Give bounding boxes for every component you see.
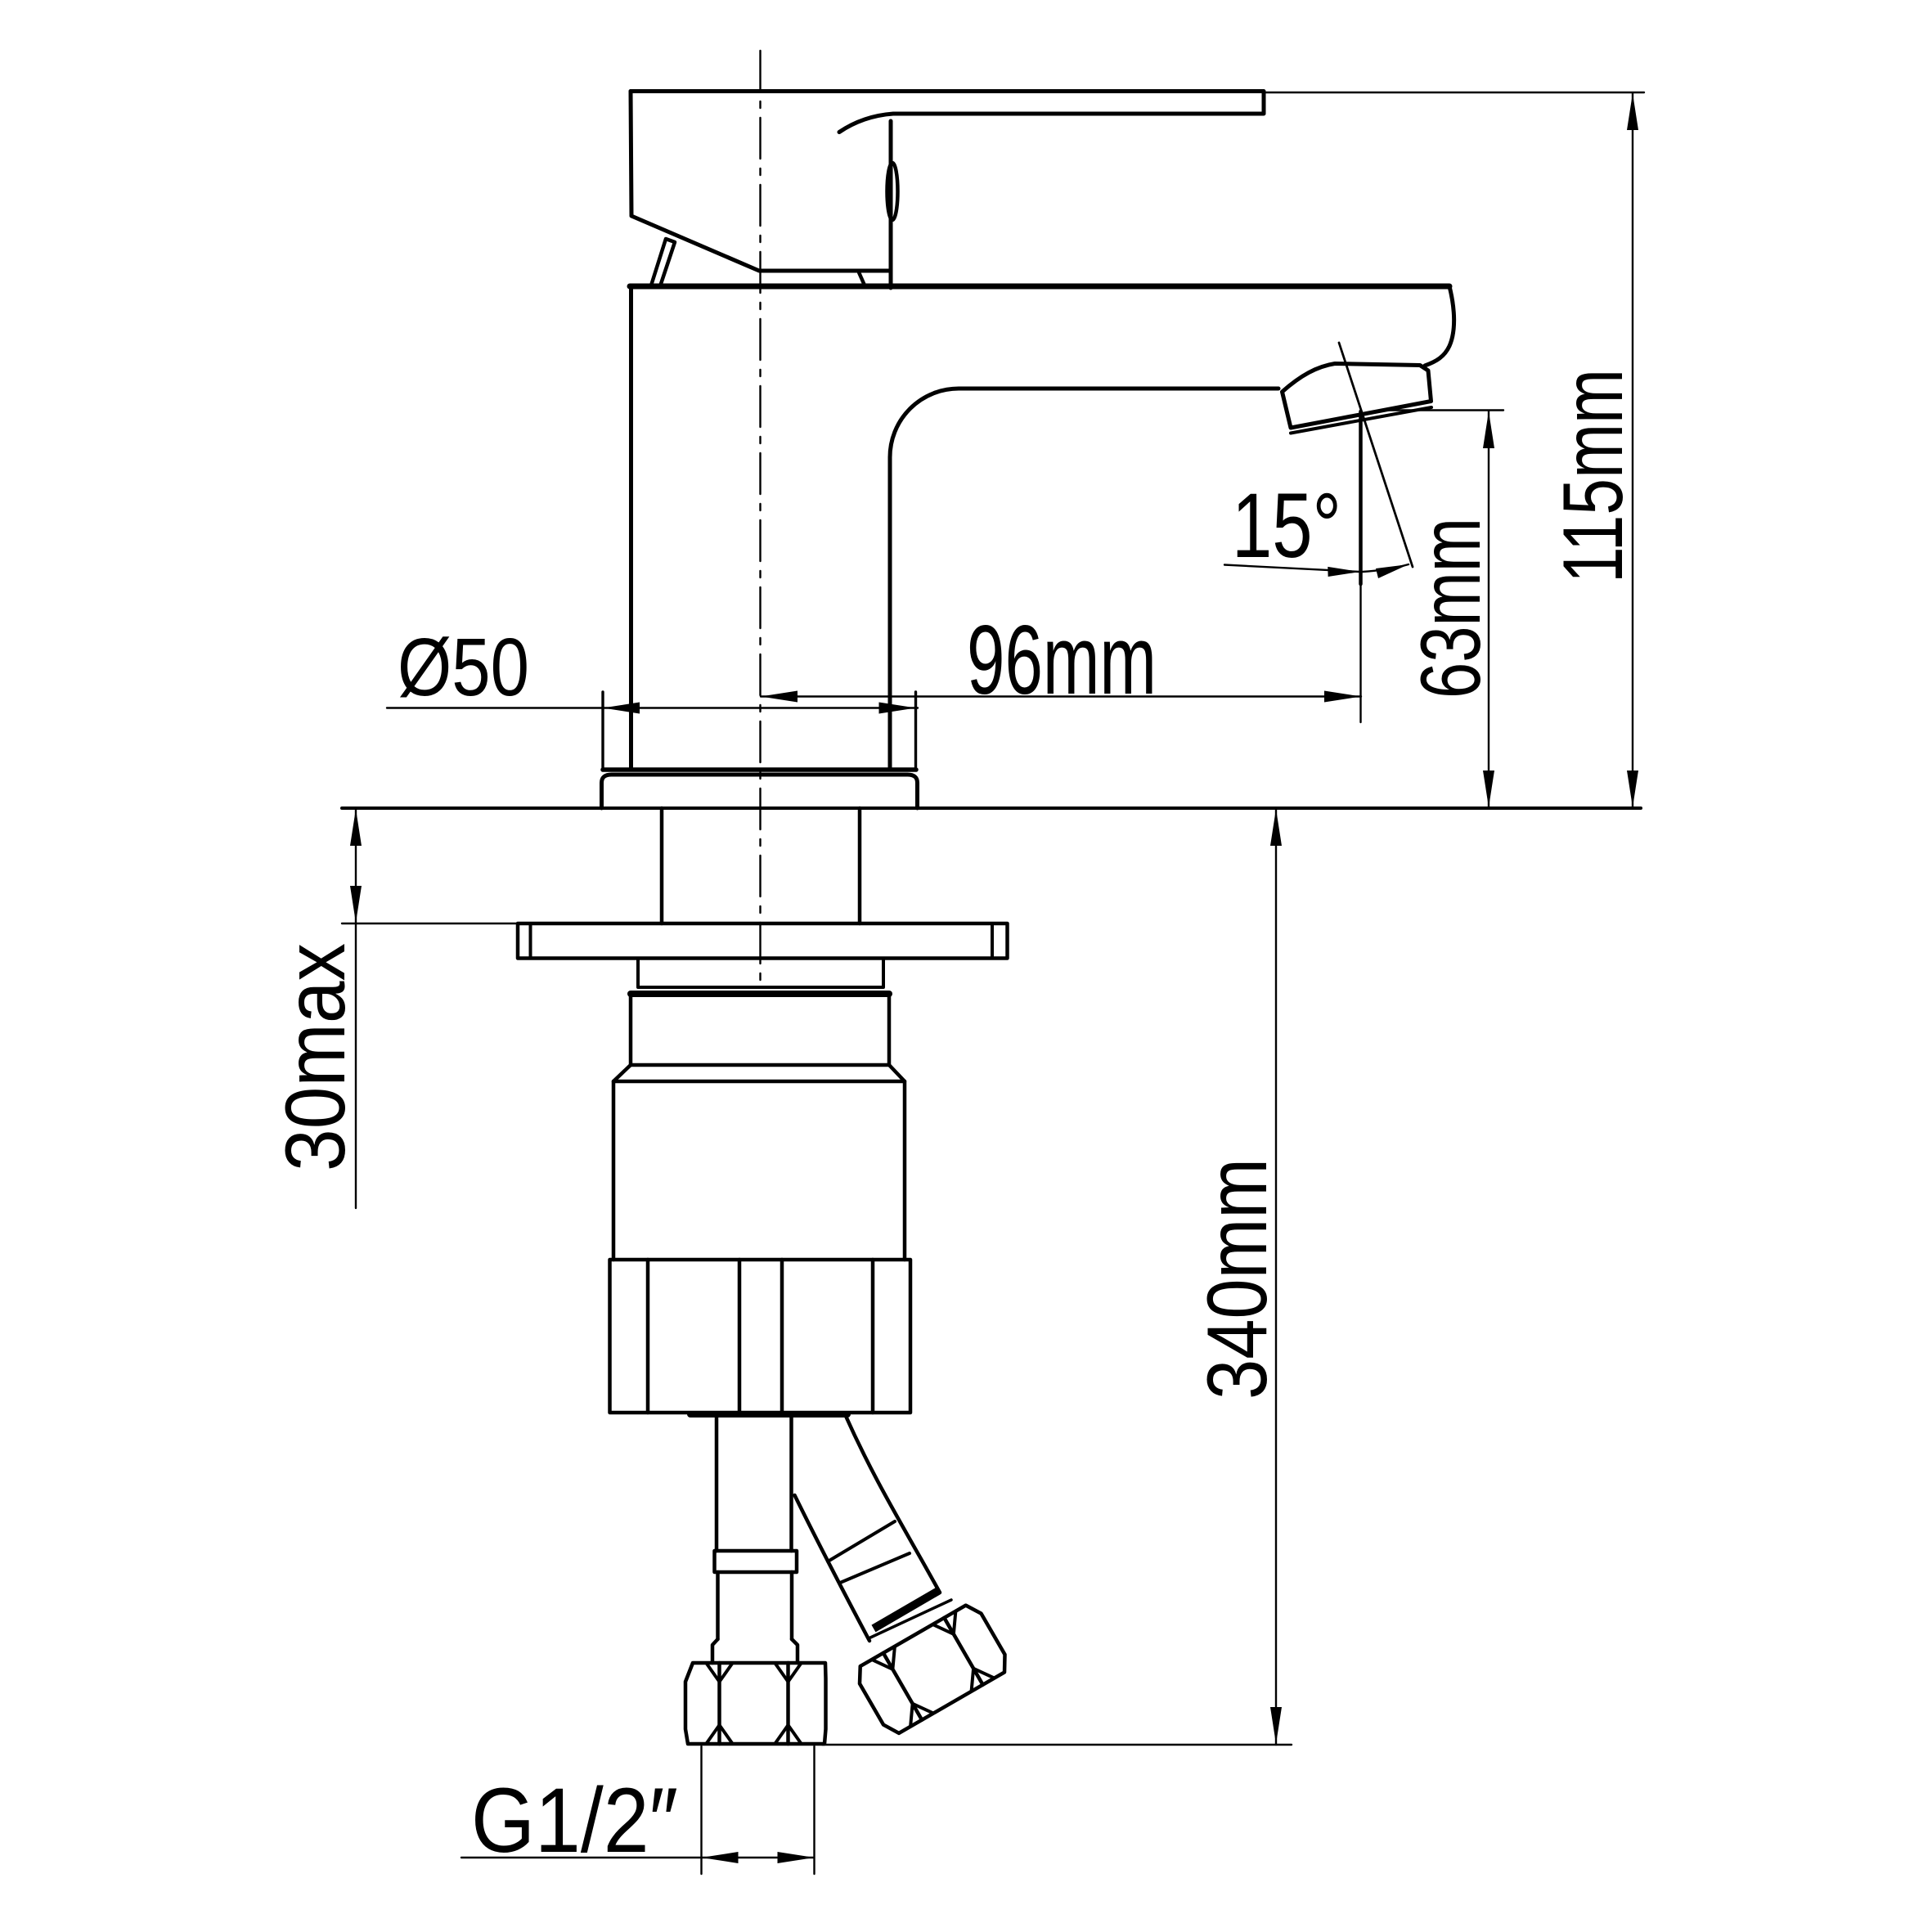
svg-text:30max: 30max bbox=[268, 943, 363, 1171]
svg-text:63mm: 63mm bbox=[1404, 518, 1498, 699]
svg-text:Ø50: Ø50 bbox=[398, 622, 529, 713]
svg-text:115mm: 115mm bbox=[1546, 369, 1641, 583]
svg-text:15°: 15° bbox=[1232, 474, 1341, 577]
svg-text:96mm: 96mm bbox=[967, 605, 1157, 715]
svg-text:G1/2″: G1/2″ bbox=[471, 1769, 678, 1871]
svg-text:340mm: 340mm bbox=[1190, 1158, 1285, 1400]
